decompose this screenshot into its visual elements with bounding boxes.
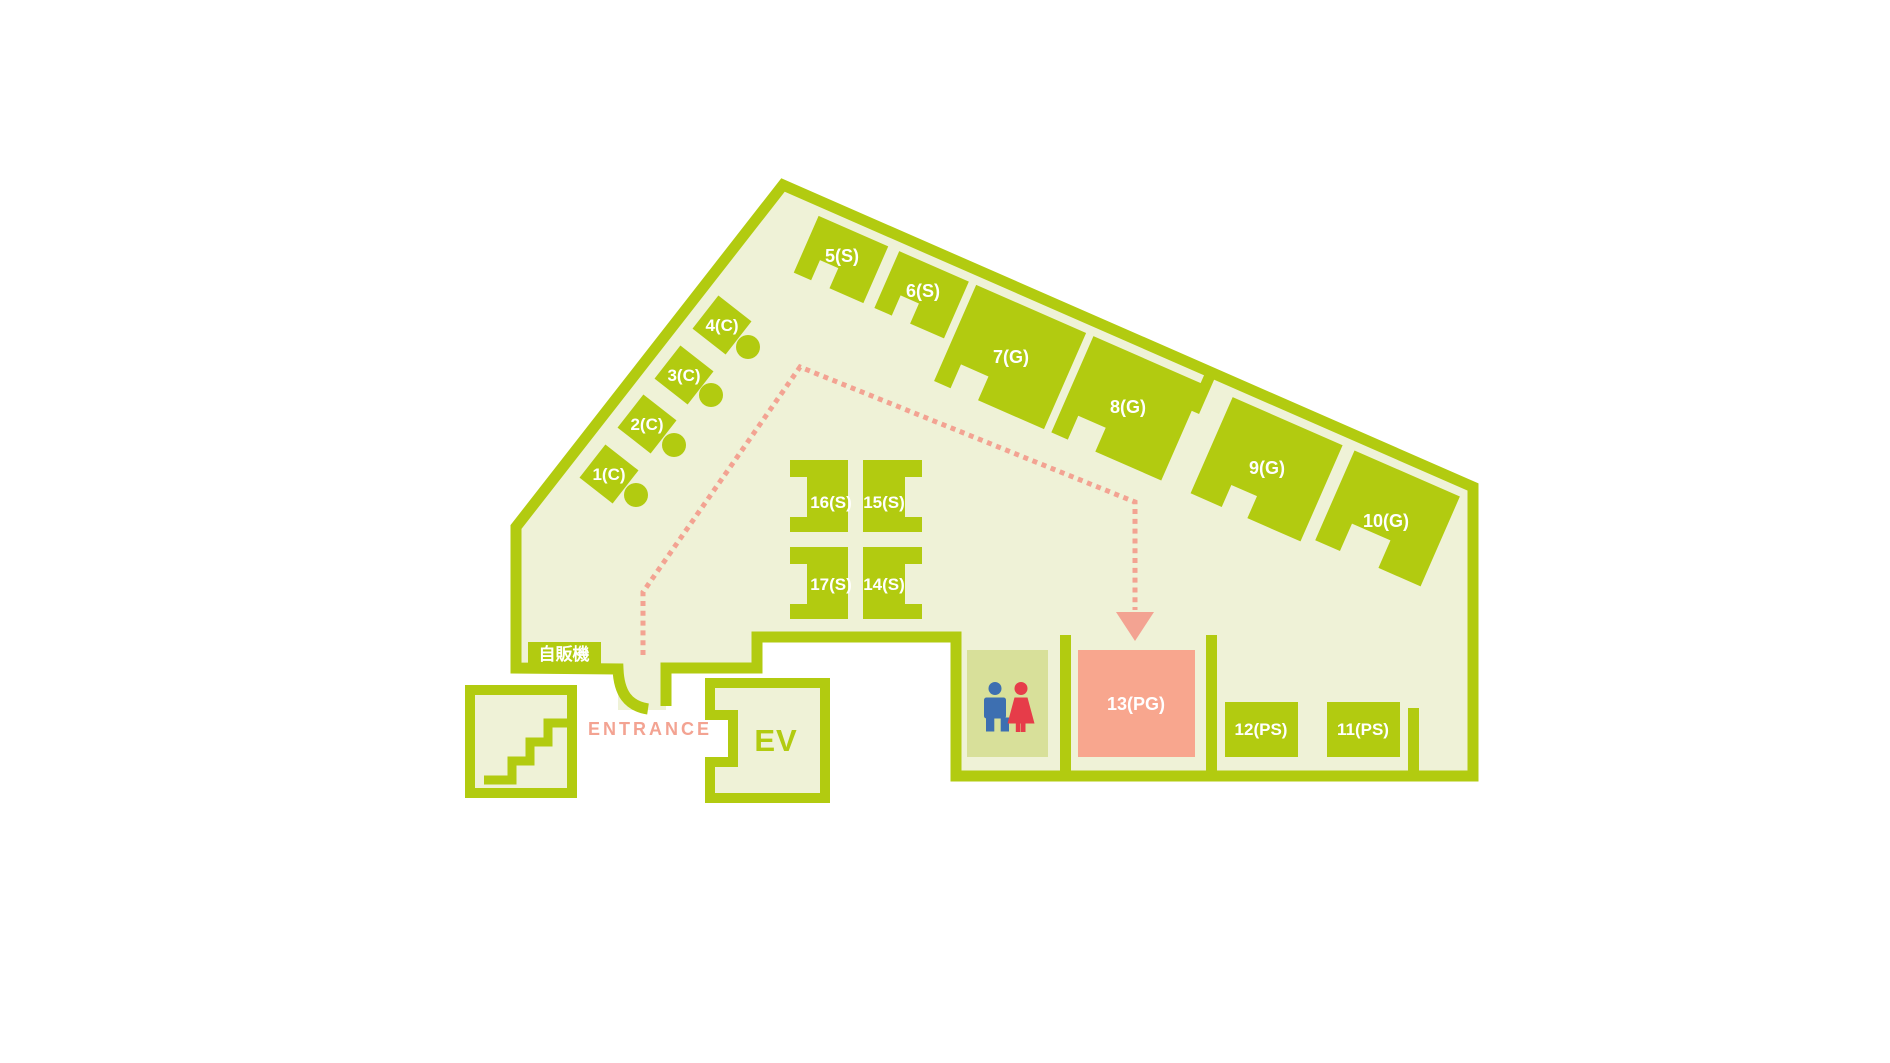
room-15s-label: 15(S)	[863, 493, 905, 512]
restroom-area[interactable]	[967, 650, 1048, 757]
entrance-label: ENTRANCE	[588, 719, 712, 739]
room-4c-label: 4(C)	[705, 316, 738, 335]
room-6s-label: 6(S)	[906, 281, 940, 301]
room-8g-label: 8(G)	[1110, 397, 1146, 417]
room-7g-label: 7(G)	[993, 347, 1029, 367]
room-13pg-label: 13(PG)	[1107, 694, 1165, 714]
divider-wall	[1206, 635, 1217, 771]
room-12ps-label: 12(PS)	[1235, 720, 1288, 739]
room-11ps[interactable]: 11(PS)	[1327, 702, 1400, 757]
room-10g-label: 10(G)	[1363, 511, 1409, 531]
divider-wall	[1408, 708, 1419, 771]
stool-icon	[699, 383, 723, 407]
ev-label: EV	[754, 723, 797, 758]
room-12ps[interactable]: 12(PS)	[1225, 702, 1298, 757]
vending-label: 自販機	[539, 644, 590, 664]
room-1c-label: 1(C)	[592, 465, 625, 484]
room-13pg[interactable]: 13(PG)	[1078, 650, 1195, 757]
room-16s-label: 16(S)	[810, 493, 852, 512]
room-11ps-label: 11(PS)	[1337, 720, 1389, 739]
stairs-area[interactable]	[470, 690, 572, 793]
stool-icon	[736, 335, 760, 359]
stool-icon	[662, 433, 686, 457]
room-17s-label: 17(S)	[810, 575, 852, 594]
room-14s-label: 14(S)	[863, 575, 905, 594]
stool-icon	[624, 483, 648, 507]
divider-wall	[1060, 635, 1071, 771]
room-3c-label: 3(C)	[667, 366, 700, 385]
vending-machine[interactable]: 自販機	[528, 642, 601, 667]
room-5s-label: 5(S)	[825, 246, 859, 266]
room-2c-label: 2(C)	[630, 415, 663, 434]
elevator[interactable]: EV	[710, 683, 825, 798]
room-9g-label: 9(G)	[1249, 458, 1285, 478]
restroom-box	[967, 650, 1048, 757]
floor-map: 自販機 5(S) 6(S) 7(G) 8(G) 9(G) 10(G) 4(C) …	[0, 0, 1890, 1063]
